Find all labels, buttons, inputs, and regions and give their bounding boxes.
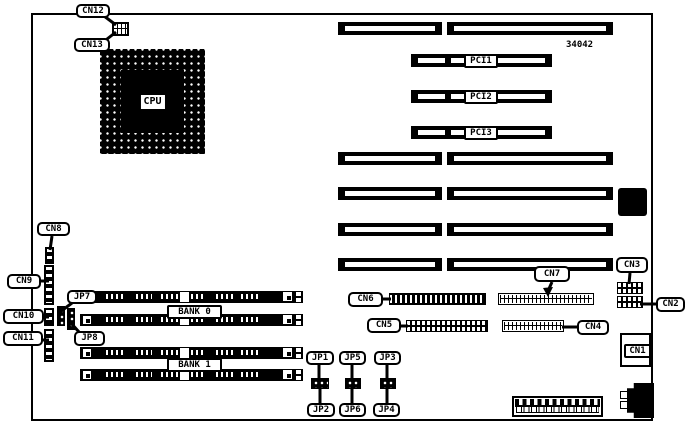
label-pci2: PCI2	[464, 90, 498, 104]
label-jp6: JP6	[339, 403, 366, 417]
cn12-cn13-connector	[112, 22, 129, 36]
cn4-connector	[502, 320, 564, 332]
isa-slot	[338, 152, 442, 165]
din-tab	[620, 391, 628, 399]
label-jp5: JP5	[339, 351, 366, 365]
label-jp8: JP8	[74, 331, 105, 346]
simm-clip	[83, 371, 91, 379]
simm-clip	[283, 292, 292, 301]
simm-clip	[83, 349, 91, 357]
label-jp1: JP1	[306, 351, 334, 365]
chip	[618, 188, 647, 216]
cn2-connector	[617, 296, 643, 308]
jp3-jp4-jumper	[380, 378, 396, 389]
label-cn13: CN13	[74, 38, 110, 52]
simm-endcap	[296, 376, 301, 380]
label-jp2: JP2	[307, 403, 335, 417]
din-tab	[620, 401, 628, 409]
label-cn12: CN12	[76, 4, 110, 18]
cpu-socket: CPU	[100, 49, 205, 154]
jp7-jumper	[57, 306, 65, 326]
label-jp7: JP7	[67, 290, 97, 304]
jp8-jumper	[67, 308, 75, 330]
label-cn8: CN8	[37, 222, 70, 236]
label-cn10: CN10	[3, 309, 44, 324]
simm-endcap	[296, 354, 301, 358]
jp1-jp2-jumper	[311, 378, 329, 389]
cn6-connector	[389, 293, 486, 305]
simm-clip	[83, 316, 91, 324]
slot-key-notch	[445, 130, 451, 135]
power-connector	[512, 396, 603, 417]
keyboard-din-connector	[627, 383, 654, 418]
cn9-connector	[44, 265, 54, 305]
cn11-connector	[44, 329, 54, 362]
isa-slot	[338, 223, 442, 236]
simm-endcap	[296, 315, 301, 319]
simm-clip	[283, 370, 292, 379]
isa-slot	[447, 22, 613, 35]
simm-endcap	[296, 321, 301, 325]
label-cn6: CN6	[348, 292, 383, 307]
isa-slot	[447, 152, 613, 165]
isa-slot	[447, 223, 613, 236]
cpu-label: CPU	[140, 95, 164, 109]
simm-socket	[80, 291, 303, 303]
label-cn11: CN11	[3, 331, 43, 346]
label-bank0: BANK 0	[167, 305, 222, 319]
cn7-connector	[498, 293, 594, 305]
isa-slot	[338, 258, 442, 271]
part-number: 34042	[566, 40, 593, 50]
label-pci1: PCI1	[464, 54, 498, 68]
simm-endcap	[296, 298, 301, 302]
label-cn1: CN1	[624, 344, 651, 358]
label-cn4: CN4	[577, 320, 609, 335]
label-cn9: CN9	[7, 274, 41, 289]
label-pci3: PCI3	[464, 126, 498, 140]
cn10-connector	[44, 308, 54, 326]
simm-clip	[283, 315, 292, 324]
cn5-connector	[406, 320, 488, 332]
isa-slot	[338, 187, 442, 200]
simm-endcap	[296, 348, 301, 352]
jp5-jp6-jumper	[345, 378, 361, 389]
label-bank1: BANK 1	[167, 358, 222, 372]
simm-endcap	[296, 370, 301, 374]
slot-key-notch	[445, 94, 451, 99]
slot-key-notch	[445, 58, 451, 63]
label-cn3: CN3	[616, 257, 648, 273]
label-cn2: CN2	[656, 297, 685, 312]
isa-slot	[338, 22, 442, 35]
isa-slot	[447, 258, 613, 271]
simm-clip	[283, 348, 292, 357]
cn3-connector	[617, 282, 643, 294]
label-jp4: JP4	[373, 403, 400, 417]
label-jp3: JP3	[374, 351, 401, 365]
power-cells	[516, 406, 599, 413]
label-cn7: CN7	[534, 266, 570, 282]
cn8-connector	[45, 247, 54, 264]
motherboard-diagram: 34042 CPU CN12 CN13 PCI1 PCI2 PCI3	[0, 0, 685, 426]
simm-endcap	[296, 292, 301, 296]
label-cn5: CN5	[367, 318, 401, 333]
isa-slot	[447, 187, 613, 200]
